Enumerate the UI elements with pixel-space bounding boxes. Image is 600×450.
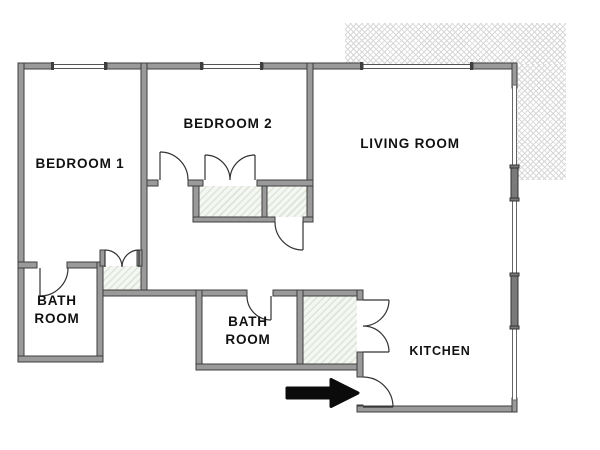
room-label-bathroom2-line1: BATH xyxy=(225,313,270,331)
room-label-bathroom2-line2: ROOM xyxy=(225,331,270,349)
right-wall xyxy=(513,85,517,400)
room-label-bathroom1-line1: BATH xyxy=(34,292,79,310)
room-label-kitchen: KITCHEN xyxy=(409,342,470,360)
entrance-arrow-icon xyxy=(287,380,358,407)
room-label-bathroom1: BATH ROOM xyxy=(34,292,79,328)
floor-plan: BEDROOM 1 BEDROOM 2 LIVING ROOM BATH ROO… xyxy=(0,0,600,450)
room-label-bathroom2: BATH ROOM xyxy=(225,313,270,349)
room-label-living-room: LIVING ROOM xyxy=(360,135,460,153)
room-label-bedroom1: BEDROOM 1 xyxy=(36,155,125,173)
floorplan-linework xyxy=(0,0,600,450)
room-label-bedroom2: BEDROOM 2 xyxy=(184,115,273,133)
room-label-bathroom1-line2: ROOM xyxy=(34,310,79,328)
